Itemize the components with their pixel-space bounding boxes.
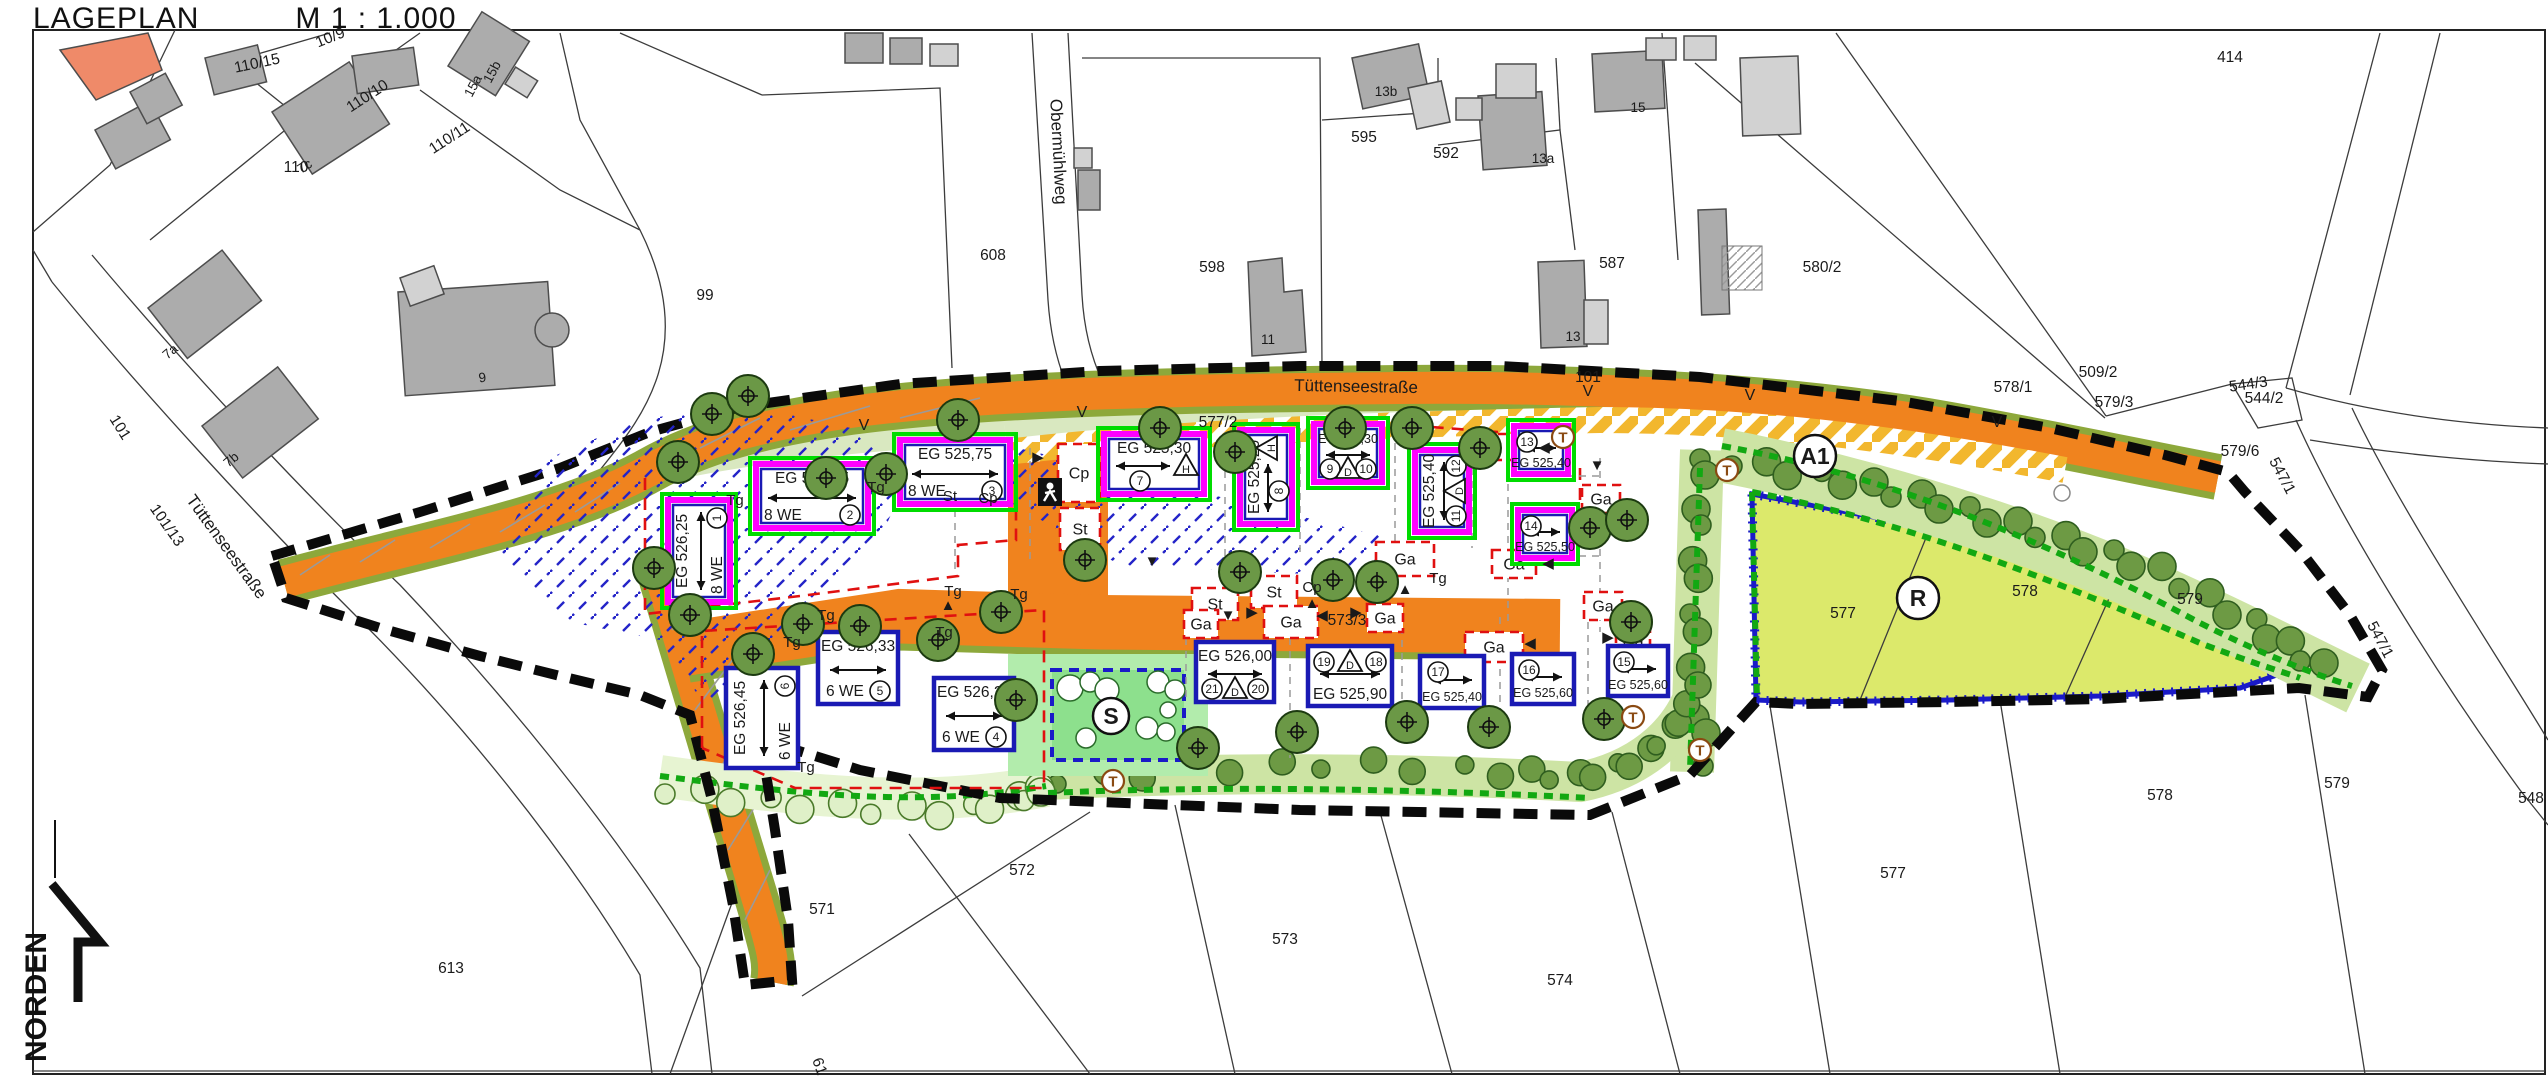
garage-box-label: Ga	[1280, 615, 1301, 632]
planned-building: EG 526,456 WE6	[726, 668, 798, 768]
building-number: 11	[1449, 509, 1463, 522]
parcel-label: 613	[438, 960, 464, 977]
existing-building	[1684, 36, 1716, 60]
tree-icon	[839, 605, 881, 647]
building-elevation-label: EG 526,00	[1198, 648, 1272, 665]
direction-arrow: ▼	[1145, 553, 1160, 570]
hedge-bush-icon	[1487, 763, 1513, 789]
parcel-label: 573/3	[1328, 612, 1367, 629]
hedge-bush-icon	[2117, 552, 2145, 580]
parcel-label: 571	[809, 901, 835, 918]
planned-building: EG 525,6016	[1512, 654, 1574, 704]
existing-building	[1584, 300, 1608, 344]
tree-icon	[1610, 601, 1652, 643]
usage-label-tg: Tg	[783, 634, 801, 651]
direction-arrow: ▶	[1602, 629, 1614, 646]
tree-icon	[1276, 711, 1318, 753]
parcel-label: 544/2	[2245, 390, 2284, 407]
existing-building-label: 11	[1261, 332, 1275, 347]
existing-building	[845, 33, 883, 63]
existing-building	[535, 313, 569, 347]
tree-icon	[1386, 701, 1428, 743]
hedge-bush-icon	[925, 802, 953, 830]
v-marker: V	[859, 417, 870, 434]
parcel-label: 572	[1009, 862, 1035, 879]
building-number: 21	[1205, 682, 1219, 696]
building-number: 9	[1327, 462, 1334, 476]
garage-box-label: Ga	[1590, 492, 1611, 509]
building-elevation-label: EG 525,75	[918, 446, 992, 463]
usage-label-tg: Tg	[1010, 586, 1028, 603]
existing-building	[1646, 38, 1676, 60]
tree-icon	[633, 547, 675, 589]
existing-building	[1496, 64, 1536, 98]
tree-icon	[669, 594, 711, 636]
tree-icon	[995, 679, 1037, 721]
tree-icon	[1064, 539, 1106, 581]
hedge-bush-icon	[1399, 758, 1425, 784]
tree-icon	[1177, 727, 1219, 769]
building-number: 7	[1137, 474, 1144, 488]
crosswalk-icon	[1038, 478, 1062, 506]
direction-arrow: ▼	[1590, 457, 1605, 474]
building-units-label: 8 WE	[709, 556, 726, 594]
building-number: 13	[1520, 435, 1534, 449]
hedge-bush-icon	[1580, 764, 1606, 790]
direction-arrow: ▼	[1221, 607, 1236, 624]
garage-box-label: Ga	[1374, 611, 1395, 628]
usage-label-cp: Cp	[978, 490, 997, 507]
hedge-bush-icon	[786, 795, 814, 823]
building-elevation-label: EG 525,90	[1313, 686, 1387, 703]
v-marker: V	[1745, 387, 1756, 404]
building-units-label: 8 WE	[764, 507, 802, 524]
tree-icon	[1583, 698, 1625, 740]
site-plan-map: CpStStStGaGaGaGaGaGaGaGaGa EG 526,258 WE…	[0, 0, 2548, 1080]
direction-arrow: ▶	[1246, 604, 1258, 621]
v-marker: V	[1992, 414, 2003, 431]
parcel-label: 578	[2147, 787, 2173, 804]
t-marker-label: T	[1628, 710, 1637, 727]
parcel-label: 548	[2518, 790, 2544, 807]
tree-icon	[1391, 407, 1433, 449]
existing-building	[1740, 56, 1801, 136]
hedge-bush-icon	[1685, 672, 1711, 698]
garage-box-label: St	[1072, 522, 1088, 539]
usage-label-tg: Tg	[817, 607, 835, 624]
existing-building-label: 15	[1630, 100, 1645, 115]
garage-box-label: Ga	[1483, 640, 1504, 657]
roof-type-letter: H	[1266, 444, 1278, 452]
usage-label-cp: Cp	[1302, 579, 1321, 596]
planned-building: EG 526,258 WE1	[662, 494, 736, 608]
north-label: NORDEN	[20, 932, 53, 1062]
parcel-label: 579/3	[2095, 394, 2134, 411]
building-content: EG 525,4011D12	[1421, 454, 1466, 528]
building-elevation-label: EG 525,40	[1421, 454, 1438, 528]
area-marker-label: R	[1910, 585, 1927, 611]
planned-building: EG 525,4017	[1420, 656, 1484, 708]
hedge-bush-icon	[1540, 771, 1558, 789]
parcel-label: 101	[1575, 369, 1601, 386]
planned-building: EG 525,9019D18	[1308, 646, 1392, 706]
building-elevation-label: EG 525,40	[1422, 690, 1482, 704]
direction-arrow: ◀	[1316, 607, 1328, 624]
building-elevation-label: EG 525,50	[1515, 540, 1575, 554]
tree-icon	[1214, 431, 1256, 473]
planned-building: EG 525,6015	[1608, 646, 1668, 696]
tree-icon	[1459, 427, 1501, 469]
roof-type-letter: D	[1344, 467, 1352, 479]
tree-icon	[727, 375, 769, 417]
hedge-bush-icon	[1361, 747, 1387, 773]
parcel-label: 509/2	[2079, 364, 2118, 381]
tree-icon	[1324, 407, 1366, 449]
hedge-bush-icon	[717, 789, 745, 817]
garage-box-label: Ga	[1394, 552, 1415, 569]
parcel-label: 579/6	[2221, 443, 2260, 460]
building-content: EG 526,0021D20	[1198, 648, 1272, 699]
building-number: 14	[1524, 519, 1538, 533]
parcel-label: 580/2	[1803, 259, 1842, 276]
tree-icon	[657, 441, 699, 483]
direction-arrow: ▶	[1032, 449, 1044, 466]
well-dot	[2054, 485, 2070, 501]
building-number: 6	[778, 682, 792, 689]
usage-label-tg: Tg	[726, 492, 744, 509]
usage-label-st: St	[943, 488, 958, 505]
usage-label-tg: Tg	[935, 624, 953, 641]
building-number: 8	[1272, 487, 1286, 494]
parcel-label: 595	[1351, 129, 1377, 146]
garage-box-label: Cp	[1069, 466, 1090, 483]
building-number: 1	[710, 514, 724, 521]
parcel-label: 592	[1433, 145, 1459, 162]
building-number: 12	[1449, 459, 1463, 473]
garage-box-label: St	[1266, 585, 1282, 602]
map-scale: M 1 : 1.000	[295, 2, 456, 36]
parcel-label: 577	[1830, 605, 1856, 622]
direction-arrow: ◀	[1542, 555, 1554, 572]
hedge-bush-icon	[2310, 649, 2338, 677]
tree-icon	[1468, 706, 1510, 748]
parcel-label: 598	[1199, 259, 1225, 276]
v-marker: V	[1077, 404, 1088, 421]
title-block: LAGEPLAN M 1 : 1.000	[33, 2, 457, 36]
building-number: 4	[993, 730, 1000, 744]
hedge-bush-icon	[1647, 737, 1665, 755]
tree-icon	[937, 399, 979, 441]
roof-type-letter: H	[1182, 464, 1190, 476]
building-elevation-label: EG 526,25	[674, 514, 691, 588]
tree-icon	[732, 633, 774, 675]
existing-building	[930, 44, 958, 66]
parcel-label: 579	[2177, 591, 2203, 608]
hedge-bush-icon	[1616, 753, 1642, 779]
usage-label-tg: Tg	[944, 583, 962, 600]
hedge-bush-icon	[655, 784, 675, 804]
building-elevation-label: EG 526,45	[732, 681, 749, 755]
hedge-bush-icon	[861, 804, 881, 824]
tree-icon	[1569, 507, 1611, 549]
usage-label-tg: Tg	[1429, 570, 1447, 587]
roof-type-letter: D	[1346, 660, 1354, 672]
area-marker-label: A1	[1800, 443, 1830, 469]
existing-building	[890, 38, 922, 64]
parcel-label: 577/2	[1199, 414, 1238, 431]
direction-arrow: ▲	[1398, 581, 1413, 598]
existing-building	[1074, 148, 1092, 168]
building-elevation-label: EG 525,60	[1608, 678, 1668, 692]
existing-building	[1078, 170, 1100, 210]
direction-arrow: ◀	[1524, 635, 1536, 652]
tree-icon	[805, 457, 847, 499]
roof-type-letter: D	[1454, 487, 1466, 495]
parcel-label: 577	[1880, 865, 1906, 882]
building-number: 10	[1359, 462, 1373, 476]
parcel-label: 578	[2012, 583, 2038, 600]
tree-icon	[1606, 499, 1648, 541]
tree-icon	[1219, 551, 1261, 593]
building-number: 19	[1317, 655, 1331, 669]
building-number: 5	[877, 684, 884, 698]
building-units-label: 6 WE	[942, 729, 980, 746]
building-units-label: 6 WE	[777, 722, 794, 760]
building-units-label: 8 WE	[908, 483, 946, 500]
t-marker-label: T	[1558, 430, 1567, 447]
usage-label-tg: Tg	[867, 479, 885, 496]
t-marker-label: T	[1695, 743, 1704, 760]
tree-icon	[1356, 561, 1398, 603]
hedge-bush-icon	[1691, 461, 1719, 489]
hedge-bush-icon	[2148, 552, 2176, 580]
building-number: 17	[1431, 665, 1445, 679]
parcel-label: 578/1	[1994, 379, 2033, 396]
existing-building-hatched	[1722, 246, 1762, 290]
existing-building-label: 13	[1565, 329, 1580, 344]
parcel-label: 608	[980, 247, 1006, 264]
garage-box-label: Ga	[1190, 617, 1211, 634]
hedge-bush-icon	[1456, 756, 1474, 774]
hedge-bush-icon	[1312, 760, 1330, 778]
t-marker-label: T	[1722, 463, 1731, 480]
page-title: LAGEPLAN	[33, 2, 199, 36]
building-number: 20	[1251, 682, 1265, 696]
existing-building	[1456, 98, 1482, 120]
garage-box-label: Ga	[1592, 599, 1613, 616]
building-units-label: 6 WE	[826, 683, 864, 700]
parcel-label: 99	[696, 287, 713, 304]
roof-type-letter: D	[1231, 687, 1239, 699]
direction-arrow: ◀	[1538, 439, 1550, 456]
parcel-label: 574	[1547, 972, 1573, 989]
hedge-bush-icon	[2213, 601, 2241, 629]
tree-icon	[1139, 407, 1181, 449]
hedge-bush-icon	[1217, 760, 1243, 786]
building-number: 2	[847, 508, 854, 522]
building-elevation-label: EG 525,60	[1513, 686, 1573, 700]
building-number: 15	[1617, 655, 1631, 669]
building-number: 18	[1369, 655, 1383, 669]
parcel-label: 414	[2217, 49, 2243, 66]
parcel-label: 579	[2324, 775, 2350, 792]
street-name-label: Tüttenseestraße	[1294, 376, 1418, 397]
existing-building-label: 13a	[1532, 151, 1555, 166]
existing-building-label: 13b	[1375, 84, 1398, 99]
parcel-label: 587	[1599, 255, 1625, 272]
building-number: 16	[1522, 663, 1536, 677]
planned-building: EG 526,0021D20	[1196, 642, 1274, 702]
parcel-label: 573	[1272, 931, 1298, 948]
t-marker-label: T	[1108, 774, 1117, 791]
usage-label-tg: Tg	[797, 759, 815, 776]
building-elevation-label: EG 525,40	[1511, 456, 1571, 470]
area-marker-label: S	[1103, 703, 1118, 729]
